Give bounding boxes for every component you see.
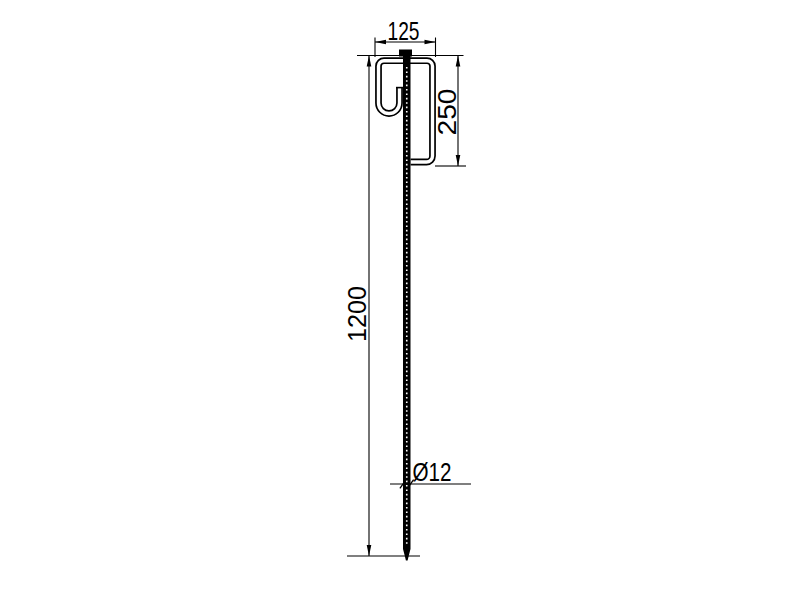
stake-tip <box>403 549 411 561</box>
hook-height-dim-label: 250 <box>433 89 461 136</box>
hook-height-arrow-bottom <box>456 155 461 166</box>
length-arrow-top <box>367 56 372 67</box>
length-dim-label: 1200 <box>343 286 371 342</box>
drawing-canvas: 125 250 1200 Ø12 <box>0 0 800 600</box>
technical-drawing: 125 250 1200 Ø12 <box>0 0 800 600</box>
diameter-dim-label: Ø12 <box>413 458 452 486</box>
width-dim-label: 125 <box>388 17 420 45</box>
width-arrow-right <box>425 40 436 45</box>
hook-height-arrow-top <box>456 56 461 67</box>
width-arrow-left <box>375 40 386 45</box>
length-arrow-bottom <box>367 545 372 556</box>
